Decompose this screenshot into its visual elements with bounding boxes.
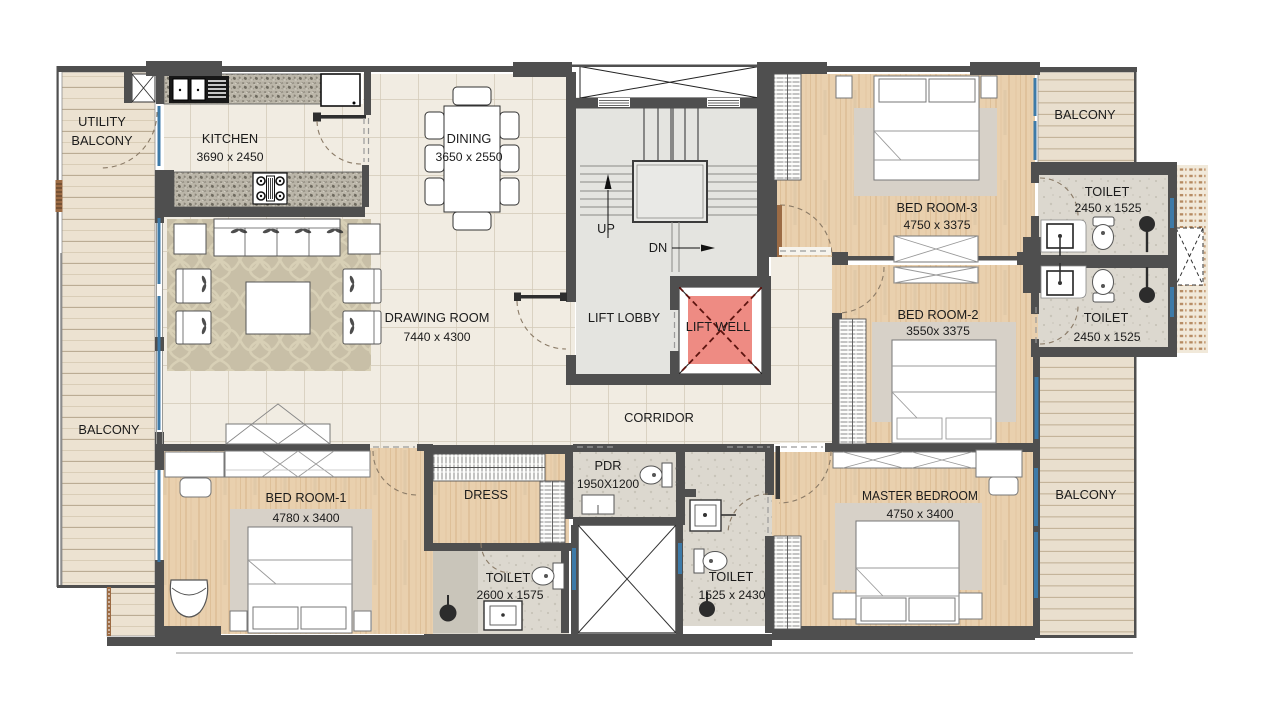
- svg-text:BED ROOM-3: BED ROOM-3: [896, 200, 977, 215]
- svg-text:PDR: PDR: [594, 458, 621, 473]
- svg-text:BALCONY: BALCONY: [71, 133, 133, 148]
- svg-text:BED ROOM-1: BED ROOM-1: [265, 490, 346, 505]
- svg-text:LIFT LOBBY: LIFT LOBBY: [588, 310, 661, 325]
- svg-text:7440 x 4300: 7440 x 4300: [403, 330, 470, 344]
- svg-text:DN: DN: [649, 240, 667, 255]
- svg-text:3650 x 2550: 3650 x 2550: [435, 150, 502, 164]
- svg-text:LIFT WELL: LIFT WELL: [686, 319, 750, 334]
- svg-text:DRESS: DRESS: [464, 487, 508, 502]
- svg-text:TOILET: TOILET: [709, 569, 754, 584]
- svg-text:4780 x 3400: 4780 x 3400: [272, 511, 339, 525]
- svg-text:1525 x 2430: 1525 x 2430: [698, 588, 765, 602]
- svg-text:TOILET: TOILET: [486, 570, 531, 585]
- svg-text:UTILITY: UTILITY: [78, 114, 126, 129]
- svg-text:DINING: DINING: [447, 131, 492, 146]
- svg-text:BALCONY: BALCONY: [1054, 107, 1116, 122]
- svg-text:MASTER BEDROOM: MASTER BEDROOM: [862, 488, 978, 503]
- svg-text:BED ROOM-2: BED ROOM-2: [897, 307, 978, 322]
- svg-text:UP: UP: [597, 221, 615, 236]
- svg-text:1950X1200: 1950X1200: [577, 477, 640, 491]
- svg-text:TOILET: TOILET: [1085, 184, 1130, 199]
- svg-text:DRAWING ROOM: DRAWING ROOM: [385, 310, 490, 325]
- svg-text:2450 x 1525: 2450 x 1525: [1073, 330, 1140, 344]
- svg-text:BALCONY: BALCONY: [1055, 487, 1117, 502]
- svg-text:4750 x 3375: 4750 x 3375: [903, 218, 970, 232]
- svg-text:2600 x 1575: 2600 x 1575: [476, 588, 543, 602]
- svg-text:KITCHEN: KITCHEN: [202, 131, 258, 146]
- svg-text:BALCONY: BALCONY: [78, 422, 140, 437]
- svg-text:4750 x 3400: 4750 x 3400: [886, 507, 953, 521]
- svg-text:CORRIDOR: CORRIDOR: [624, 410, 694, 425]
- svg-text:3690 x 2450: 3690 x 2450: [196, 150, 263, 164]
- svg-text:2450 x 1525: 2450 x 1525: [1074, 201, 1141, 215]
- svg-text:3550x 3375: 3550x 3375: [906, 324, 970, 338]
- svg-text:TOILET: TOILET: [1084, 310, 1129, 325]
